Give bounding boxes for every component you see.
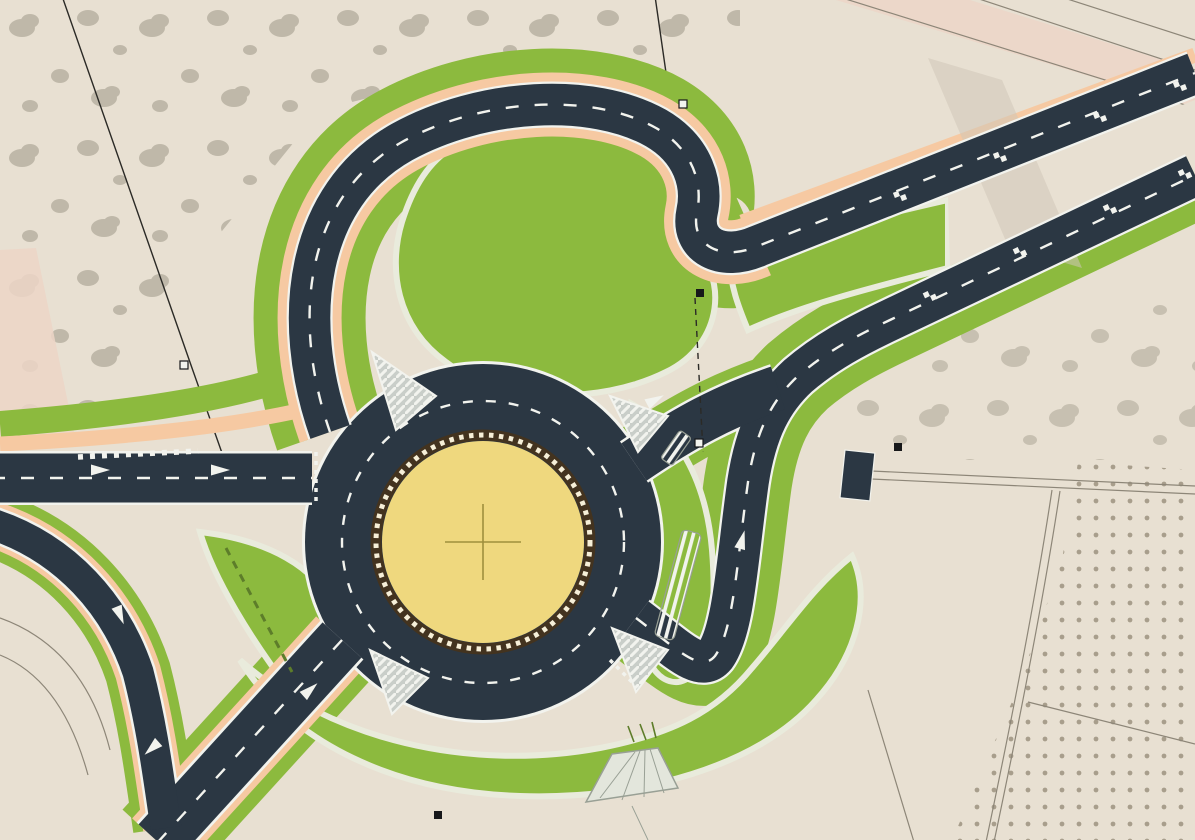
- survey-marker-dark: [894, 443, 902, 451]
- survey-marker-white: [180, 361, 188, 369]
- culvert-structure: [840, 450, 875, 501]
- survey-marker-white: [679, 100, 687, 108]
- survey-marker-dark: [434, 811, 442, 819]
- survey-marker-white: [695, 439, 703, 447]
- plan-canvas: [0, 0, 1195, 840]
- site-plan[interactable]: [0, 0, 1195, 840]
- central-island: [376, 435, 590, 649]
- survey-marker-dark: [696, 289, 704, 297]
